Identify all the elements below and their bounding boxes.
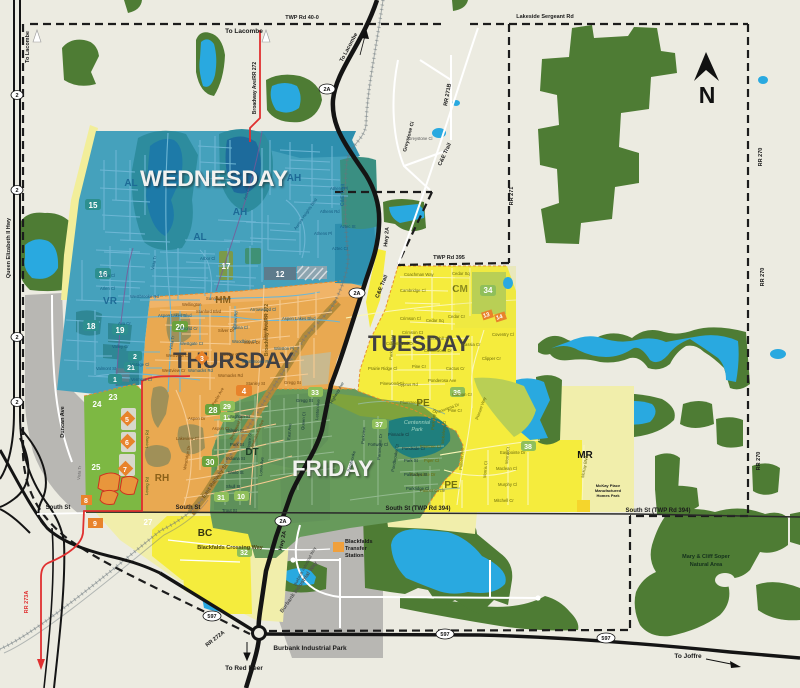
svg-text:Clipper Cr: Clipper Cr [482, 356, 501, 361]
svg-text:4: 4 [242, 387, 247, 396]
svg-text:Wilson St: Wilson St [226, 428, 245, 433]
svg-text:27: 27 [144, 518, 153, 527]
svg-text:Cedar Cr: Cedar Cr [448, 314, 466, 319]
svg-text:Cottonwood Dr: Cottonwood Dr [424, 348, 453, 353]
svg-text:Indiana St: Indiana St [226, 456, 246, 461]
svg-text:Womacks Rd: Womacks Rd [218, 373, 243, 378]
svg-text:RR 270: RR 270 [756, 452, 762, 471]
svg-text:Stanley St: Stanley St [246, 381, 266, 386]
svg-text:South St (TWP Rd 394): South St (TWP Rd 394) [386, 506, 451, 512]
svg-text:Sunridge Ave: Sunridge Ave [206, 296, 232, 301]
svg-text:Burbank Industrial Park: Burbank Industrial Park [273, 645, 347, 652]
svg-text:18: 18 [87, 322, 96, 331]
svg-text:Silver Dr: Silver Dr [218, 328, 235, 333]
svg-text:2: 2 [15, 335, 18, 341]
svg-text:Silver Dr: Silver Dr [244, 340, 261, 345]
svg-text:Westbrooke Rd: Westbrooke Rd [242, 359, 271, 364]
svg-text:Anna Cl: Anna Cl [100, 273, 115, 278]
svg-text:8: 8 [84, 498, 88, 505]
svg-text:Maclean Cl: Maclean Cl [496, 466, 517, 471]
svg-text:Centennial: Centennial [404, 420, 431, 426]
svg-text:AL: AL [124, 178, 137, 189]
svg-text:Westgate Cr: Westgate Cr [180, 341, 204, 346]
svg-text:Ponderosa Ave: Ponderosa Ave [428, 378, 457, 383]
svg-text:23: 23 [109, 393, 118, 402]
svg-text:VR: VR [103, 296, 118, 307]
svg-text:TWP Rd 40-0: TWP Rd 40-0 [285, 15, 319, 21]
svg-text:Lakeside Sergeant Rd: Lakeside Sergeant Rd [516, 14, 573, 20]
svg-text:3: 3 [200, 356, 204, 363]
svg-text:Park St: Park St [230, 442, 245, 447]
svg-text:1: 1 [113, 377, 117, 384]
svg-text:Arbor Cl: Arbor Cl [200, 256, 215, 261]
svg-text:PE: PE [444, 480, 458, 491]
svg-text:South St (TWP Rd 394): South St (TWP Rd 394) [626, 508, 691, 514]
svg-text:2A: 2A [323, 87, 330, 93]
svg-text:Gregg St: Gregg St [284, 380, 302, 385]
svg-text:Valley Cr: Valley Cr [112, 344, 129, 349]
svg-text:Crimson Ct: Crimson Ct [402, 330, 424, 335]
svg-text:Transfer: Transfer [345, 546, 368, 552]
svg-text:29: 29 [223, 404, 231, 411]
svg-text:BC: BC [198, 528, 212, 539]
svg-text:2: 2 [133, 354, 137, 361]
svg-text:Churchill Pl: Churchill Pl [428, 336, 449, 341]
svg-text:To Lacombe: To Lacombe [225, 28, 263, 35]
svg-text:Coventry Cl: Coventry Cl [492, 332, 514, 337]
svg-text:2: 2 [15, 188, 18, 194]
svg-text:Park St: Park St [404, 458, 419, 463]
svg-text:WEDNESDAY: WEDNESDAY [140, 166, 288, 191]
svg-text:Aspen Lakes Blvd: Aspen Lakes Blvd [158, 313, 192, 318]
svg-text:Pinewood Cl: Pinewood Cl [380, 381, 404, 386]
svg-text:Sunrise Cl: Sunrise Cl [220, 352, 239, 357]
svg-text:To Red Deer: To Red Deer [225, 665, 263, 672]
svg-text:Crimson Cl: Crimson Cl [400, 316, 421, 321]
svg-text:N: N [699, 82, 716, 108]
svg-text:RR 271: RR 271 [509, 187, 515, 206]
svg-text:AH: AH [287, 173, 301, 184]
svg-text:Womacks Rd: Womacks Rd [188, 368, 213, 373]
svg-text:Blackfalds Crossing Way: Blackfalds Crossing Way [197, 545, 263, 551]
svg-text:AH: AH [233, 207, 247, 218]
svg-text:17: 17 [222, 262, 231, 271]
svg-text:Leung Rd: Leung Rd [144, 429, 150, 448]
svg-text:Westview Cr: Westview Cr [166, 353, 190, 358]
svg-text:Cedar Sq: Cedar Sq [452, 271, 470, 276]
svg-text:To Joffre: To Joffre [674, 653, 702, 660]
svg-text:Almond Cr: Almond Cr [178, 326, 198, 331]
svg-text:33: 33 [311, 390, 319, 397]
svg-text:597: 597 [601, 636, 610, 642]
svg-text:Piper Cl: Piper Cl [424, 458, 439, 463]
svg-text:Ava Cr: Ava Cr [118, 321, 131, 326]
svg-text:24: 24 [93, 400, 102, 409]
svg-text:Athens Rd: Athens Rd [320, 209, 340, 214]
svg-text:2: 2 [15, 93, 18, 99]
svg-text:28: 28 [209, 406, 218, 415]
svg-text:9: 9 [93, 521, 97, 528]
svg-text:Cassia Cr: Cassia Cr [462, 342, 481, 347]
svg-text:Cedar Sq: Cedar Sq [426, 318, 444, 323]
svg-text:Palisades St: Palisades St [404, 472, 428, 477]
svg-text:2A: 2A [279, 519, 286, 525]
svg-text:Winston Pl: Winston Pl [274, 346, 294, 351]
svg-text:Westbrooke Rd: Westbrooke Rd [130, 294, 159, 299]
svg-text:Blackfalds: Blackfalds [345, 539, 373, 545]
svg-text:Broadway Ave: Broadway Ave [262, 313, 268, 341]
svg-text:Aztec Cr: Aztec Cr [332, 246, 349, 251]
svg-text:Mary & Cliff Soper: Mary & Cliff Soper [682, 554, 731, 560]
svg-text:Cactus Cr: Cactus Cr [446, 366, 465, 371]
svg-text:Duncan Ave: Duncan Ave [60, 406, 66, 437]
svg-text:10: 10 [237, 494, 245, 501]
svg-text:Waghorn St: Waghorn St [228, 414, 251, 419]
svg-text:37: 37 [375, 422, 383, 429]
svg-text:To Lacombe: To Lacombe [25, 31, 31, 63]
svg-text:RR 273A: RR 273A [24, 591, 30, 614]
svg-text:Pine Cr: Pine Cr [412, 364, 427, 369]
svg-text:Winlo St: Winlo St [228, 470, 244, 475]
svg-text:31: 31 [217, 495, 225, 502]
svg-text:RR 270: RR 270 [758, 148, 764, 167]
svg-text:Mitchell Cr: Mitchell Cr [494, 498, 514, 503]
svg-text:RH: RH [155, 473, 169, 484]
svg-text:Lakeview Cl: Lakeview Cl [176, 436, 199, 441]
svg-text:Leung Rd: Leung Rd [144, 476, 150, 495]
svg-text:7: 7 [123, 467, 127, 474]
svg-text:Prairie Ridge Cl: Prairie Ridge Cl [368, 366, 397, 371]
svg-text:Aspen Lakes Blvd: Aspen Lakes Blvd [282, 316, 316, 321]
svg-text:Homes Park: Homes Park [596, 493, 620, 498]
svg-text:Valmont St: Valmont St [96, 366, 117, 371]
svg-text:RR 270: RR 270 [760, 268, 766, 287]
svg-text:19: 19 [116, 326, 125, 335]
svg-text:Gregg St: Gregg St [296, 398, 314, 403]
svg-text:Athens Pl: Athens Pl [314, 231, 332, 236]
svg-text:6: 6 [125, 440, 129, 447]
svg-text:Trout St: Trout St [222, 508, 238, 513]
svg-text:Greystone Cl: Greystone Cl [408, 136, 433, 141]
svg-text:Station: Station [345, 553, 364, 559]
svg-text:25: 25 [92, 463, 101, 472]
svg-text:5: 5 [125, 417, 129, 424]
svg-text:12: 12 [276, 270, 285, 279]
svg-text:Park: Park [411, 427, 423, 433]
svg-text:Aztec St: Aztec St [340, 224, 356, 229]
svg-text:Vermont Cl: Vermont Cl [131, 377, 152, 382]
svg-text:Pondside Cr: Pondside Cr [402, 446, 426, 451]
svg-text:Colman Cr: Colman Cr [452, 392, 473, 397]
svg-text:Westview Cr: Westview Cr [162, 368, 186, 373]
svg-text:Pinnacle Cl: Pinnacle Cl [388, 432, 409, 437]
svg-text:Vintage Cl: Vintage Cl [130, 362, 149, 367]
svg-text:FRIDAY: FRIDAY [292, 456, 373, 481]
svg-text:Athens Pl: Athens Pl [330, 186, 348, 191]
svg-text:Murphy Cl: Murphy Cl [498, 482, 517, 487]
svg-text:Wellington: Wellington [182, 302, 202, 307]
svg-text:TWP Rd 395: TWP Rd 395 [433, 255, 465, 261]
svg-text:15: 15 [89, 201, 98, 210]
svg-text:Cambridge Cl: Cambridge Cl [400, 288, 426, 293]
svg-text:Queen Elizabeth II Hwy: Queen Elizabeth II Hwy [6, 217, 12, 278]
svg-text:South St: South St [46, 505, 71, 511]
svg-text:30: 30 [206, 458, 215, 467]
svg-text:Coachman Way: Coachman Way [404, 272, 435, 277]
svg-text:Shull St: Shull St [226, 484, 241, 489]
svg-text:Aspen Dr: Aspen Dr [188, 416, 206, 421]
svg-text:AL: AL [193, 232, 206, 243]
svg-text:34: 34 [484, 286, 493, 295]
svg-text:Arrowwood Cl: Arrowwood Cl [250, 307, 276, 312]
svg-text:2A: 2A [353, 291, 360, 297]
svg-text:2: 2 [15, 400, 18, 406]
svg-text:South St: South St [176, 505, 201, 511]
svg-text:Plumtree Cr: Plumtree Cr [400, 400, 423, 405]
svg-text:Stanford Blvd: Stanford Blvd [196, 309, 222, 314]
svg-text:Natural Area: Natural Area [690, 562, 723, 568]
svg-text:Parkridge Cl: Parkridge Cl [406, 486, 429, 491]
svg-text:597: 597 [207, 614, 216, 620]
svg-text:Broadway Ave/RR 272: Broadway Ave/RR 272 [252, 62, 258, 115]
svg-text:597: 597 [440, 632, 449, 638]
svg-text:32: 32 [240, 550, 248, 557]
svg-text:Arlen Cl: Arlen Cl [100, 286, 115, 291]
